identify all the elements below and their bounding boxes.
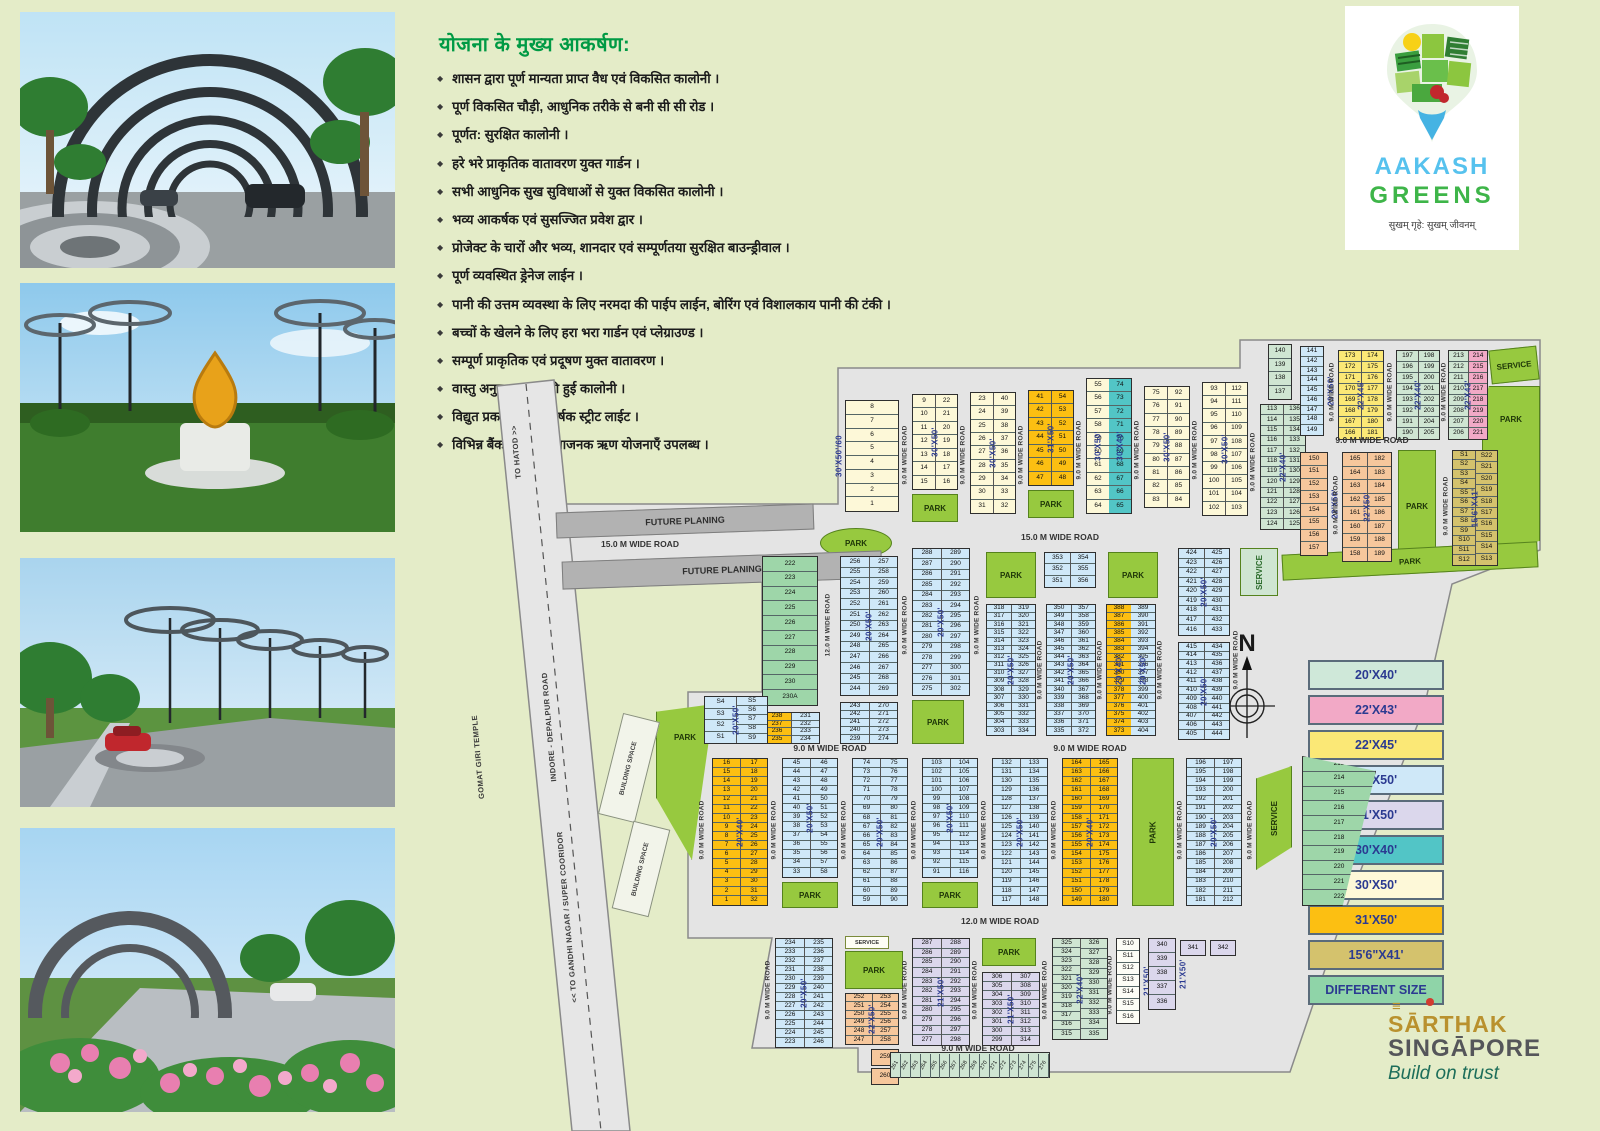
plot[interactable]: 33: [994, 486, 1015, 499]
plot[interactable]: 82: [881, 823, 907, 832]
plot[interactable]: 178: [1091, 878, 1117, 887]
plot[interactable]: 116: [951, 868, 977, 877]
plot[interactable]: S3: [1453, 470, 1475, 479]
plot[interactable]: 205: [1215, 832, 1241, 841]
plot[interactable]: 302: [942, 684, 969, 694]
plot[interactable]: 250: [841, 621, 869, 632]
plot[interactable]: 268: [960, 1054, 970, 1078]
plot[interactable]: 261: [870, 599, 897, 610]
plot[interactable]: 169: [1091, 796, 1117, 805]
plot[interactable]: 290: [942, 559, 969, 569]
plot[interactable]: 73: [1109, 392, 1131, 405]
plot[interactable]: 352: [1045, 564, 1070, 575]
plot[interactable]: 163: [1343, 480, 1367, 494]
plot[interactable]: 284: [913, 968, 941, 978]
plot[interactable]: 171: [1091, 814, 1117, 823]
plot[interactable]: 28: [741, 859, 767, 868]
plot[interactable]: 315: [987, 629, 1011, 637]
plot[interactable]: 192: [1187, 796, 1214, 805]
plot[interactable]: 312: [1012, 1018, 1039, 1027]
plot[interactable]: 153: [1301, 491, 1327, 504]
plot[interactable]: 90: [1168, 414, 1189, 427]
plot[interactable]: 7: [846, 415, 898, 429]
plot[interactable]: 68: [853, 814, 880, 823]
plot[interactable]: 30: [741, 878, 767, 887]
plot[interactable]: 429: [1205, 587, 1229, 597]
plot[interactable]: 324: [1012, 646, 1035, 654]
plot[interactable]: 304: [987, 719, 1011, 727]
plot[interactable]: 100: [1203, 475, 1225, 488]
plot[interactable]: 52: [811, 813, 837, 822]
plot[interactable]: 296: [942, 622, 969, 632]
plot[interactable]: 183: [1187, 878, 1214, 887]
plot[interactable]: 243: [841, 703, 869, 711]
plot[interactable]: 365: [1072, 670, 1095, 678]
plot[interactable]: 28: [971, 460, 993, 473]
plot[interactable]: 23: [741, 814, 767, 823]
plot[interactable]: 302: [983, 1009, 1011, 1018]
plot[interactable]: 257: [870, 557, 897, 568]
plot[interactable]: 196: [1397, 362, 1418, 373]
plot[interactable]: 212: [1215, 896, 1241, 905]
plot[interactable]: 34: [783, 859, 810, 868]
plot[interactable]: 157: [1063, 823, 1090, 832]
plot[interactable]: S10: [1117, 939, 1139, 951]
plot[interactable]: 179: [1091, 887, 1117, 896]
plot[interactable]: 226: [776, 1011, 804, 1020]
plot[interactable]: 5: [713, 859, 740, 868]
plot[interactable]: 326: [1081, 939, 1107, 949]
plot[interactable]: 306: [983, 973, 1011, 982]
plot[interactable]: 168: [1091, 786, 1117, 795]
plot[interactable]: 317: [987, 613, 1011, 621]
plot[interactable]: 223: [776, 1038, 804, 1047]
plot[interactable]: S11: [1453, 546, 1475, 555]
plot[interactable]: 122: [1261, 498, 1283, 508]
plot[interactable]: 262: [901, 1054, 911, 1078]
plot[interactable]: 52: [1052, 418, 1073, 431]
plot[interactable]: 174: [1091, 841, 1117, 850]
plot[interactable]: 40: [783, 804, 810, 813]
plot[interactable]: 251: [846, 1002, 872, 1010]
plot[interactable]: 379: [1107, 678, 1131, 686]
plot[interactable]: 138: [1269, 372, 1291, 386]
plot[interactable]: 180: [1091, 896, 1117, 905]
plot[interactable]: 237: [805, 957, 832, 966]
plot[interactable]: 273: [870, 727, 897, 735]
plot[interactable]: 219: [1469, 406, 1487, 417]
plot[interactable]: 38: [783, 822, 810, 831]
plot[interactable]: 26: [971, 433, 993, 446]
plot[interactable]: 318: [1053, 1003, 1080, 1012]
plot[interactable]: 402: [1131, 711, 1155, 719]
plot[interactable]: 143: [1301, 367, 1323, 377]
plot[interactable]: S5: [1453, 489, 1475, 498]
plot[interactable]: 342: [1211, 941, 1235, 955]
plot[interactable]: 118: [993, 887, 1020, 896]
plot[interactable]: 375: [1107, 711, 1131, 719]
plot[interactable]: 74: [1109, 379, 1131, 392]
plot[interactable]: 392: [1131, 629, 1155, 637]
plot[interactable]: 269: [970, 1054, 980, 1078]
plot[interactable]: 311: [987, 662, 1011, 670]
plot[interactable]: 272: [870, 719, 897, 727]
plot[interactable]: 133: [1021, 759, 1047, 768]
plot[interactable]: 277: [913, 664, 941, 674]
plot[interactable]: 187: [1187, 841, 1214, 850]
plot[interactable]: 399: [1131, 686, 1155, 694]
plot[interactable]: 76: [881, 768, 907, 777]
plot[interactable]: 147: [1021, 887, 1047, 896]
plot[interactable]: 225: [776, 1020, 804, 1029]
plot[interactable]: 246: [841, 663, 869, 674]
plot[interactable]: 281: [913, 997, 941, 1007]
plot[interactable]: 132: [993, 759, 1020, 768]
plot[interactable]: 13: [913, 449, 935, 462]
plot[interactable]: 307: [1012, 973, 1039, 982]
plot[interactable]: 273: [1010, 1054, 1020, 1078]
plot[interactable]: 341: [1047, 678, 1071, 686]
plot[interactable]: 94: [923, 841, 950, 850]
plot[interactable]: 129: [993, 786, 1020, 795]
plot[interactable]: 166: [1091, 768, 1117, 777]
plot[interactable]: 154: [1301, 504, 1327, 517]
plot[interactable]: 371: [1072, 719, 1095, 727]
plot[interactable]: 211: [1449, 373, 1468, 384]
plot[interactable]: 135: [1021, 777, 1047, 786]
plot[interactable]: 50: [811, 795, 837, 804]
plot[interactable]: 121: [1261, 488, 1283, 498]
plot[interactable]: 244: [841, 684, 869, 695]
plot[interactable]: 238: [805, 966, 832, 975]
plot[interactable]: 170: [1339, 384, 1361, 395]
plot[interactable]: 144: [1301, 376, 1323, 386]
plot[interactable]: 162: [1063, 777, 1090, 786]
plot[interactable]: 99: [923, 795, 950, 804]
plot[interactable]: 77: [881, 777, 907, 786]
plot[interactable]: 154: [1063, 850, 1090, 859]
plot[interactable]: 176: [1091, 859, 1117, 868]
plot[interactable]: 387: [1107, 613, 1131, 621]
plot[interactable]: S1: [705, 732, 736, 744]
plot[interactable]: 338: [1149, 967, 1175, 981]
plot[interactable]: 309: [1012, 991, 1039, 1000]
plot[interactable]: 228: [763, 646, 817, 661]
plot[interactable]: 193: [1187, 786, 1214, 795]
plot[interactable]: 433: [1205, 625, 1229, 635]
plot[interactable]: 53: [811, 822, 837, 831]
plot[interactable]: 142: [1021, 841, 1047, 850]
plot[interactable]: 336: [1047, 719, 1071, 727]
plot[interactable]: 293: [942, 987, 969, 997]
plot[interactable]: 435: [1205, 652, 1229, 661]
plot[interactable]: 140: [1021, 823, 1047, 832]
plot[interactable]: S18: [1476, 497, 1497, 508]
plot[interactable]: 43: [783, 777, 810, 786]
plot[interactable]: S14: [1117, 987, 1139, 999]
plot[interactable]: 294: [942, 997, 969, 1007]
plot[interactable]: 368: [1072, 694, 1095, 702]
plot[interactable]: 370: [1072, 711, 1095, 719]
plot[interactable]: 21: [936, 408, 957, 421]
plot[interactable]: 143: [1021, 850, 1047, 859]
plot[interactable]: 340: [1047, 686, 1071, 694]
plot[interactable]: 140: [1269, 345, 1291, 359]
plot[interactable]: 45: [783, 759, 810, 768]
plot[interactable]: 117: [1261, 446, 1283, 456]
plot[interactable]: 293: [942, 591, 969, 601]
plot[interactable]: 322: [1012, 629, 1035, 637]
plot[interactable]: 63: [853, 859, 880, 868]
plot[interactable]: 125: [993, 823, 1020, 832]
plot[interactable]: 89: [1168, 427, 1189, 440]
plot[interactable]: 325: [1012, 654, 1035, 662]
plot[interactable]: 315: [1053, 1030, 1080, 1039]
plot[interactable]: 193: [1397, 395, 1418, 406]
plot[interactable]: 230: [776, 975, 804, 984]
plot[interactable]: 94: [1203, 396, 1225, 409]
plot[interactable]: 112: [1226, 383, 1247, 396]
plot[interactable]: 247: [841, 652, 869, 663]
plot[interactable]: 161: [1063, 786, 1090, 795]
plot[interactable]: 199: [1215, 777, 1241, 786]
plot[interactable]: 388: [1107, 605, 1131, 613]
plot[interactable]: 88: [1168, 440, 1189, 453]
plot[interactable]: 174: [1362, 351, 1383, 362]
plot[interactable]: 334: [1081, 1019, 1107, 1029]
plot[interactable]: 51: [811, 804, 837, 813]
plot[interactable]: 441: [1205, 704, 1229, 713]
plot[interactable]: 425: [1205, 549, 1229, 559]
plot[interactable]: 444: [1205, 730, 1229, 739]
plot[interactable]: 121: [993, 859, 1020, 868]
plot[interactable]: 56: [811, 850, 837, 859]
plot[interactable]: 160: [1343, 521, 1367, 535]
plot[interactable]: 252: [846, 994, 872, 1002]
plot[interactable]: 276: [1039, 1054, 1049, 1078]
plot[interactable]: 120: [993, 869, 1020, 878]
plot[interactable]: 200: [1419, 373, 1439, 384]
plot[interactable]: 70: [1109, 433, 1131, 446]
plot[interactable]: 382: [1107, 654, 1131, 662]
plot[interactable]: 5: [846, 442, 898, 456]
plot[interactable]: 336: [1149, 995, 1175, 1009]
plot[interactable]: 259: [870, 578, 897, 589]
plot[interactable]: 249: [841, 631, 869, 642]
plot[interactable]: 54: [811, 832, 837, 841]
plot[interactable]: 407: [1179, 713, 1204, 722]
plot[interactable]: 14: [913, 462, 935, 475]
plot[interactable]: 396: [1131, 662, 1155, 670]
plot[interactable]: 327: [1012, 670, 1035, 678]
plot[interactable]: 171: [1339, 373, 1361, 384]
plot[interactable]: 301: [983, 1018, 1011, 1027]
plot[interactable]: 61: [853, 878, 880, 887]
plot[interactable]: 252: [841, 599, 869, 610]
plot[interactable]: 203: [1419, 406, 1439, 417]
plot[interactable]: 194: [1397, 384, 1418, 395]
plot[interactable]: 245: [805, 1029, 832, 1038]
plot[interactable]: 38: [994, 420, 1015, 433]
plot[interactable]: 310: [987, 670, 1011, 678]
plot[interactable]: 205: [1419, 428, 1439, 439]
plot[interactable]: 333: [1081, 1009, 1107, 1019]
plot[interactable]: 43: [1029, 418, 1051, 431]
plot[interactable]: 296: [942, 1016, 969, 1026]
plot[interactable]: 266: [870, 652, 897, 663]
plot[interactable]: 295: [942, 1006, 969, 1016]
plot[interactable]: 69: [853, 805, 880, 814]
plot[interactable]: 68: [1109, 459, 1131, 472]
plot[interactable]: 83: [881, 832, 907, 841]
plot[interactable]: 369: [1072, 703, 1095, 711]
plot[interactable]: 202: [1215, 805, 1241, 814]
plot[interactable]: 47: [1029, 472, 1051, 485]
plot[interactable]: 430: [1205, 597, 1229, 607]
plot[interactable]: 105: [951, 768, 977, 777]
plot[interactable]: 362: [1072, 646, 1095, 654]
plot[interactable]: 176: [1362, 373, 1383, 384]
plot[interactable]: 131: [993, 768, 1020, 777]
plot[interactable]: 102: [1203, 502, 1225, 515]
plot[interactable]: 155: [1063, 841, 1090, 850]
plot[interactable]: 286: [913, 570, 941, 580]
plot[interactable]: 172: [1091, 823, 1117, 832]
plot[interactable]: 385: [1107, 629, 1131, 637]
plot[interactable]: 355: [1071, 564, 1095, 575]
plot[interactable]: 151: [1301, 466, 1327, 479]
plot[interactable]: 18: [936, 449, 957, 462]
plot[interactable]: 36: [994, 446, 1015, 459]
plot[interactable]: 373: [1107, 727, 1131, 735]
plot[interactable]: 7: [713, 841, 740, 850]
plot[interactable]: 198: [1419, 351, 1439, 362]
plot[interactable]: 4: [713, 869, 740, 878]
plot[interactable]: 327: [1081, 949, 1107, 959]
plot[interactable]: 188: [1368, 534, 1391, 548]
plot[interactable]: 295: [942, 612, 969, 622]
plot[interactable]: 139: [1269, 359, 1291, 373]
plot[interactable]: 207: [1215, 850, 1241, 859]
plot[interactable]: 272: [1000, 1054, 1010, 1078]
plot[interactable]: 422: [1179, 568, 1204, 578]
plot[interactable]: 108: [1226, 436, 1247, 449]
plot[interactable]: 16: [936, 476, 957, 489]
plot[interactable]: 184: [1187, 869, 1214, 878]
plot[interactable]: 281: [913, 622, 941, 632]
plot[interactable]: 120: [1261, 477, 1283, 487]
plot[interactable]: 440: [1205, 695, 1229, 704]
plot[interactable]: 158: [1343, 548, 1367, 562]
plot[interactable]: 60: [853, 887, 880, 896]
plot[interactable]: 105: [1226, 475, 1247, 488]
plot[interactable]: S4: [705, 697, 736, 709]
plot[interactable]: 300: [983, 1027, 1011, 1036]
plot[interactable]: 305: [987, 711, 1011, 719]
plot[interactable]: 313: [987, 646, 1011, 654]
plot[interactable]: 240: [805, 984, 832, 993]
plot[interactable]: 202: [1419, 395, 1439, 406]
plot[interactable]: 46: [1029, 458, 1051, 471]
plot[interactable]: 110: [1226, 409, 1247, 422]
plot[interactable]: 69: [1109, 446, 1131, 459]
plot[interactable]: 77: [1145, 414, 1167, 427]
plot[interactable]: 331: [1081, 989, 1107, 999]
plot[interactable]: 12: [713, 796, 740, 805]
plot[interactable]: 47: [811, 768, 837, 777]
plot[interactable]: 431: [1205, 606, 1229, 616]
plot[interactable]: S14: [1476, 542, 1497, 553]
plot[interactable]: 122: [993, 850, 1020, 859]
plot[interactable]: 2: [846, 484, 898, 498]
plot[interactable]: 170: [1091, 805, 1117, 814]
plot[interactable]: 235: [805, 939, 832, 948]
plot[interactable]: 420: [1179, 587, 1204, 597]
plot[interactable]: 25: [971, 420, 993, 433]
plot[interactable]: 271: [990, 1054, 1000, 1078]
plot[interactable]: 328: [1012, 678, 1035, 686]
plot[interactable]: 234: [792, 736, 819, 744]
plot[interactable]: 50: [1052, 445, 1073, 458]
plot[interactable]: 58: [811, 868, 837, 877]
plot[interactable]: 147: [1301, 406, 1323, 416]
plot[interactable]: 3: [846, 470, 898, 484]
plot[interactable]: 349: [1047, 613, 1071, 621]
plot[interactable]: 1: [713, 896, 740, 905]
plot[interactable]: 175: [1362, 362, 1383, 373]
plot[interactable]: 395: [1131, 654, 1155, 662]
plot[interactable]: 291: [942, 570, 969, 580]
plot[interactable]: 432: [1205, 616, 1229, 626]
plot[interactable]: 172: [1339, 362, 1361, 373]
plot[interactable]: 414: [1179, 652, 1204, 661]
plot[interactable]: 231: [792, 713, 819, 721]
plot[interactable]: 8: [713, 832, 740, 841]
plot[interactable]: 56: [1087, 392, 1109, 405]
plot[interactable]: 197: [1397, 351, 1418, 362]
plot[interactable]: 89: [881, 887, 907, 896]
plot[interactable]: 256: [841, 557, 869, 568]
plot[interactable]: 142: [1301, 357, 1323, 367]
plot[interactable]: 330: [1012, 694, 1035, 702]
plot[interactable]: 250: [846, 1011, 872, 1019]
plot[interactable]: 211: [1215, 887, 1241, 896]
plot[interactable]: 348: [1047, 621, 1071, 629]
plot[interactable]: 196: [1187, 759, 1214, 768]
plot[interactable]: S22: [1476, 451, 1497, 462]
plot[interactable]: 324: [1053, 948, 1080, 957]
plot[interactable]: 150: [1063, 887, 1090, 896]
plot[interactable]: 188: [1187, 832, 1214, 841]
plot[interactable]: 405: [1179, 730, 1204, 739]
plot[interactable]: 266: [940, 1054, 950, 1078]
plot[interactable]: 18: [741, 768, 767, 777]
plot[interactable]: 264: [921, 1054, 931, 1078]
plot[interactable]: 26: [741, 841, 767, 850]
plot[interactable]: 136: [1021, 786, 1047, 795]
plot[interactable]: 223: [763, 572, 817, 587]
plot[interactable]: 27: [971, 446, 993, 459]
plot[interactable]: 4: [846, 456, 898, 470]
plot[interactable]: 215: [1469, 362, 1487, 373]
plot[interactable]: 138: [1021, 805, 1047, 814]
plot[interactable]: S7: [1453, 508, 1475, 517]
plot[interactable]: 222: [763, 557, 817, 572]
plot[interactable]: 335: [1047, 727, 1071, 735]
plot[interactable]: 239: [841, 735, 869, 743]
plot[interactable]: 314: [1012, 1036, 1039, 1045]
plot[interactable]: 155: [1301, 517, 1327, 530]
